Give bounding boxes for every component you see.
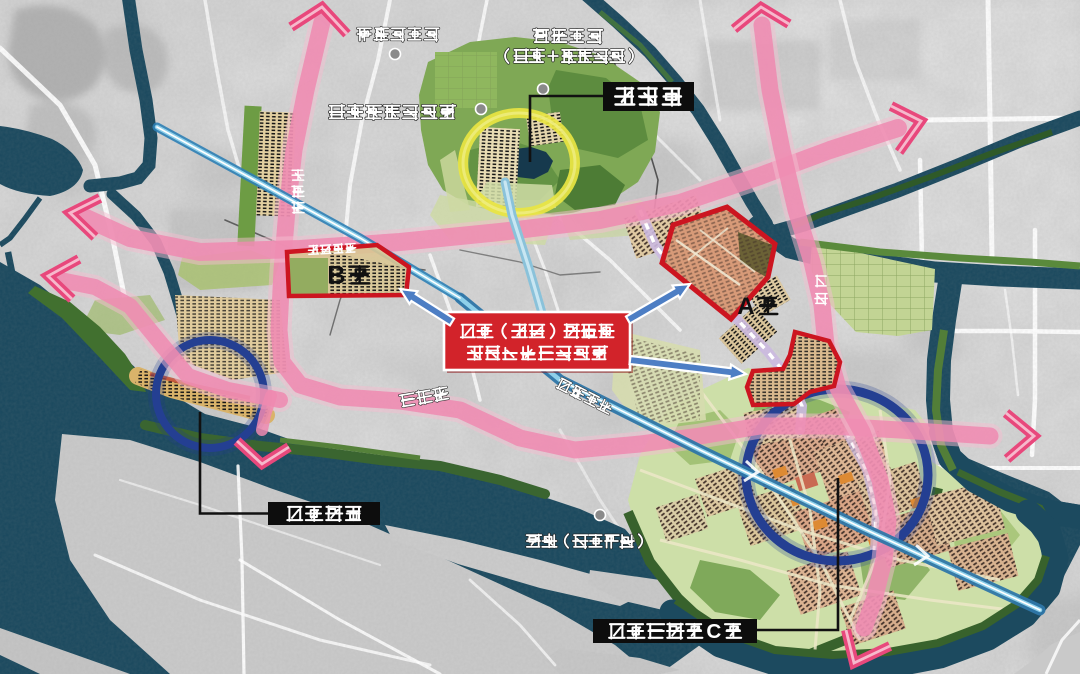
svg-text:B: B xyxy=(327,261,345,289)
svg-text:A: A xyxy=(737,293,754,320)
svg-text:C: C xyxy=(706,620,721,643)
